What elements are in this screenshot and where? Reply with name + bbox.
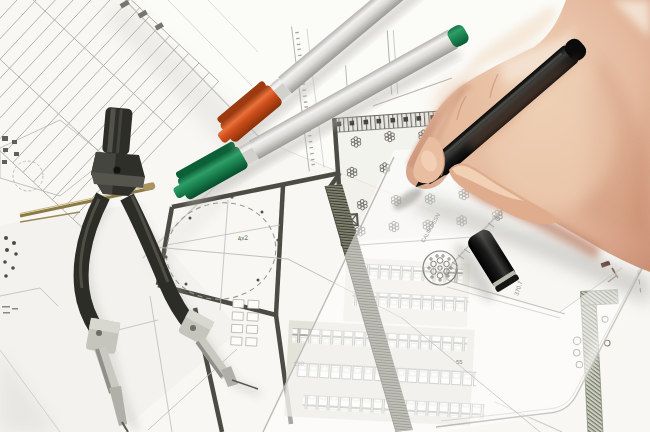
svg-text:55: 55: [456, 359, 463, 365]
